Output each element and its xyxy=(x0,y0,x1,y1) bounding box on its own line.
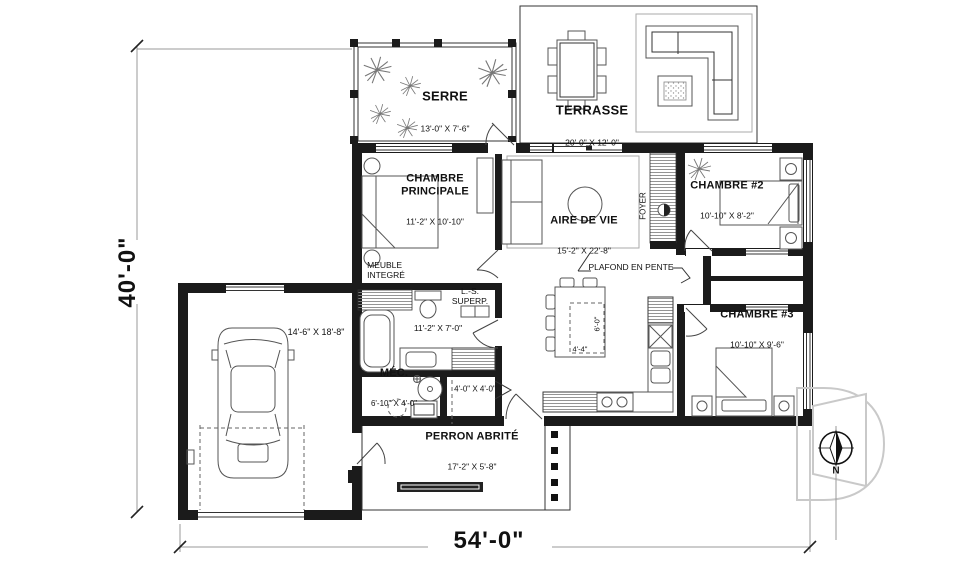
bathroom-door xyxy=(473,320,498,348)
label-garage-dims: 14'-6" X 18'-8" xyxy=(288,327,345,337)
closet-bifold-chambre2 xyxy=(746,249,788,256)
porch-posts xyxy=(551,431,558,501)
chambre3-door xyxy=(686,308,707,336)
car xyxy=(212,328,294,478)
terrasse-side-table xyxy=(658,76,692,106)
label-island-depth: 6'-0" xyxy=(594,317,603,332)
room-name: MÉC. xyxy=(371,367,417,380)
floor-plan: SERRE 13'-0" X 7'-6" TERRASSE 20'-0" X 1… xyxy=(0,0,960,569)
label-chambre-principale: CHAMBRE PRINCIPALE 11'-2" X 10'-10" xyxy=(401,154,469,245)
garage-door xyxy=(198,509,304,521)
window-aire-de-vie xyxy=(530,144,552,152)
kitchen xyxy=(543,278,673,412)
room-dims: 10'-10" X 8'-2" xyxy=(690,212,764,222)
label-serre: SERRE 13'-0" X 7'-6" xyxy=(421,72,470,153)
garage-porch-door-opening xyxy=(352,433,362,466)
label-bathroom-dims: 11'-2" X 7'-0" xyxy=(414,324,462,334)
room-dims: 6'-10" X 4'-0" xyxy=(371,399,417,408)
room-name: TERRASSE xyxy=(556,104,628,119)
label-meuble-integre: MEUBLE INTEGRÉ xyxy=(367,261,405,281)
label-island-width: 4'-4" xyxy=(573,346,588,355)
window-chambre2-right xyxy=(804,160,812,242)
window-chambre2-top xyxy=(704,144,772,152)
chambre2-door-opening xyxy=(686,249,712,256)
overall-height-dimension: 40'-0" xyxy=(114,236,142,307)
fireplace-foyer xyxy=(650,153,676,249)
room-name: CHAMBRE #3 xyxy=(720,309,794,322)
overall-width-dimension: 54'-0" xyxy=(453,527,524,555)
chambre3-door-opening xyxy=(684,305,710,312)
chambre-principale-door xyxy=(477,250,498,278)
room-name: CHAMBRE PRINCIPALE xyxy=(401,173,469,198)
room-dims: 10'-10" X 9'-6" xyxy=(720,341,794,351)
label-plafond-en-pente: PLAFOND EN PENTE xyxy=(588,263,673,273)
room-dims: 15'-2" X 22'-8" xyxy=(550,247,618,257)
label-foyer: FOYER xyxy=(638,192,647,220)
label-north: N xyxy=(832,465,839,477)
label-mecanique: MÉC. 6'-10" X 4'-0" xyxy=(371,349,417,427)
room-dims: 11'-2" X 10'-10" xyxy=(401,217,469,227)
room-name: CHAMBRE #2 xyxy=(690,180,764,193)
window-garage xyxy=(226,285,284,293)
label-entry-closet-dims: 4'-0" X 4'-0" xyxy=(454,384,496,393)
window-chambre3-right xyxy=(804,333,812,409)
room-name: AIRE DE VIE xyxy=(550,215,618,228)
garage-contents xyxy=(187,328,304,510)
kitchen-counter-bottom xyxy=(543,392,673,412)
label-terrasse: TERRASSE 20'-0" X 12'-0" xyxy=(556,86,628,167)
kitchen-counter-right xyxy=(648,297,673,392)
built-in-cabinet xyxy=(358,290,412,310)
room-dims: 13'-0" X 7'-6" xyxy=(421,124,470,134)
room-name: SERRE xyxy=(421,90,470,105)
room-name: PERRON ABRITÉ xyxy=(425,431,518,444)
label-perron: PERRON ABRITÉ 17'-2" X 5'-8" xyxy=(425,413,518,492)
room-dims: 20'-0" X 12'-0" xyxy=(556,138,628,148)
serre-door-opening xyxy=(488,142,516,154)
label-laveuse-secheuse: L.-S. SUPERP. xyxy=(452,287,488,307)
label-chambre2: CHAMBRE #2 10'-10" X 8'-2" xyxy=(690,162,764,241)
room-dims: 17'-2" X 5'-8" xyxy=(425,463,518,473)
label-chambre3: CHAMBRE #3 10'-10" X 9'-6" xyxy=(720,291,794,370)
